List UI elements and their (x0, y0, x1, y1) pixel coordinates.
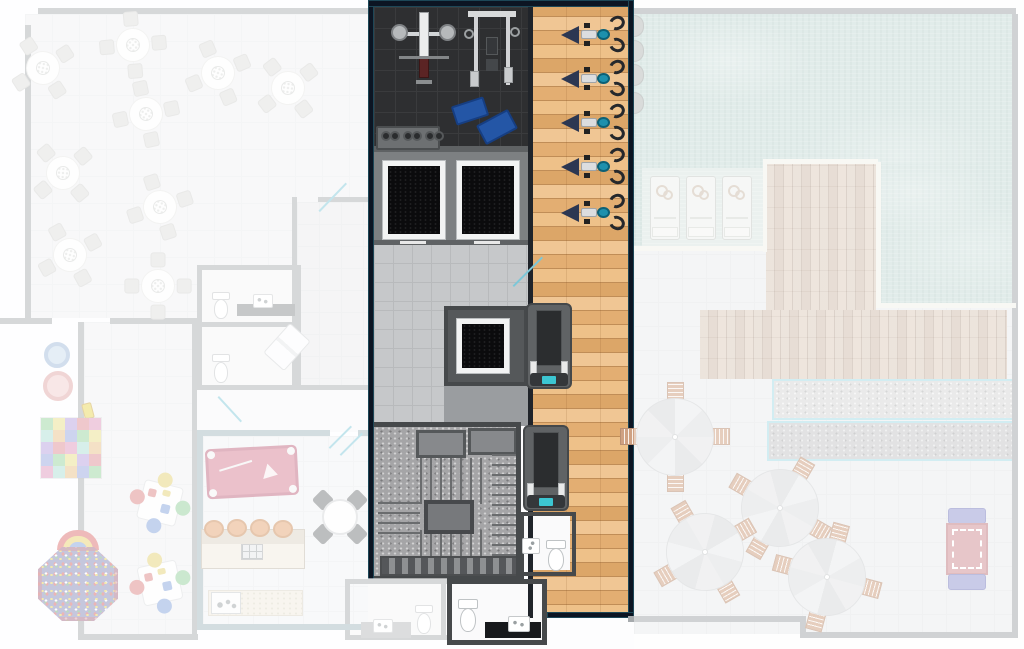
wall (876, 162, 881, 308)
wall (634, 246, 766, 251)
elevator-lobby-west[interactable] (374, 310, 444, 428)
stool (227, 519, 247, 537)
stool (250, 519, 270, 537)
sinkbox (522, 538, 540, 554)
wall (197, 430, 330, 436)
wall (374, 240, 528, 245)
wall (441, 579, 446, 640)
treadmill (523, 425, 569, 511)
mat (41, 418, 101, 478)
dining-table (28, 138, 97, 207)
wall (876, 303, 1016, 308)
toilet (211, 292, 231, 320)
wall (374, 422, 520, 427)
round-table (311, 488, 369, 546)
stool (273, 520, 293, 538)
cable (464, 7, 520, 93)
deck-lower[interactable] (700, 310, 1007, 379)
wall (292, 385, 368, 390)
wall (38, 8, 368, 14)
wall (197, 624, 368, 630)
foosball (946, 508, 988, 590)
toilet (211, 354, 231, 384)
sinkbox (508, 616, 530, 632)
wall (444, 306, 528, 310)
wall (634, 8, 1016, 14)
wall (444, 382, 528, 386)
deck-upper[interactable] (766, 162, 876, 312)
stair-landing (444, 386, 528, 426)
highlight-outline-wall (547, 612, 634, 618)
wall (542, 579, 547, 645)
press (391, 6, 457, 90)
toilet (414, 605, 434, 635)
stair-detail (380, 556, 520, 576)
wall (447, 579, 547, 584)
wall (400, 241, 426, 244)
sinkunit (211, 592, 241, 614)
wall (0, 318, 52, 324)
dining-table (5, 30, 81, 106)
stool (204, 520, 224, 538)
wall (447, 640, 547, 645)
elevator-lobby[interactable] (374, 244, 528, 310)
treadmill (526, 303, 572, 389)
pooltable (205, 445, 299, 500)
stair-detail (424, 500, 474, 534)
wall (572, 516, 576, 574)
stair-detail (420, 458, 490, 504)
wall (444, 306, 448, 386)
wall (197, 265, 301, 270)
wall (520, 572, 576, 576)
wall (474, 241, 500, 244)
bike (561, 148, 627, 186)
pouf (43, 371, 73, 401)
wall (520, 512, 576, 516)
kids-table (127, 550, 193, 616)
dining-table (252, 52, 324, 124)
wall (78, 634, 198, 640)
paver-strip-b (767, 421, 1016, 461)
sinkbox (373, 619, 393, 633)
toilet (545, 540, 567, 572)
wall (1012, 14, 1018, 638)
lounge (650, 176, 680, 240)
elevator (456, 318, 510, 374)
wall (763, 159, 878, 164)
stair-detail (416, 430, 466, 458)
floor-plan-canvas (0, 0, 1024, 649)
pool-water-east[interactable] (880, 164, 1014, 306)
pouf (44, 342, 70, 368)
hallway (197, 386, 368, 432)
elevator (382, 160, 446, 240)
wall (345, 579, 447, 584)
bike (561, 194, 627, 232)
bike (561, 60, 627, 98)
umbrella (620, 382, 730, 492)
sinkbox (253, 294, 273, 308)
wall (318, 197, 368, 202)
stove (241, 544, 263, 560)
lounge (686, 176, 716, 240)
wall (447, 579, 452, 645)
stair-detail (378, 498, 420, 534)
stair-detail (468, 428, 517, 455)
paver-strip-a (772, 379, 1016, 420)
toilet (457, 599, 479, 633)
bike (561, 104, 627, 142)
bike (561, 16, 627, 54)
dbrack (376, 126, 440, 150)
wall (345, 579, 350, 640)
wall (197, 385, 301, 390)
lounge (722, 176, 752, 240)
side-room[interactable] (297, 202, 368, 386)
wall (763, 159, 767, 252)
elevator (456, 160, 520, 240)
